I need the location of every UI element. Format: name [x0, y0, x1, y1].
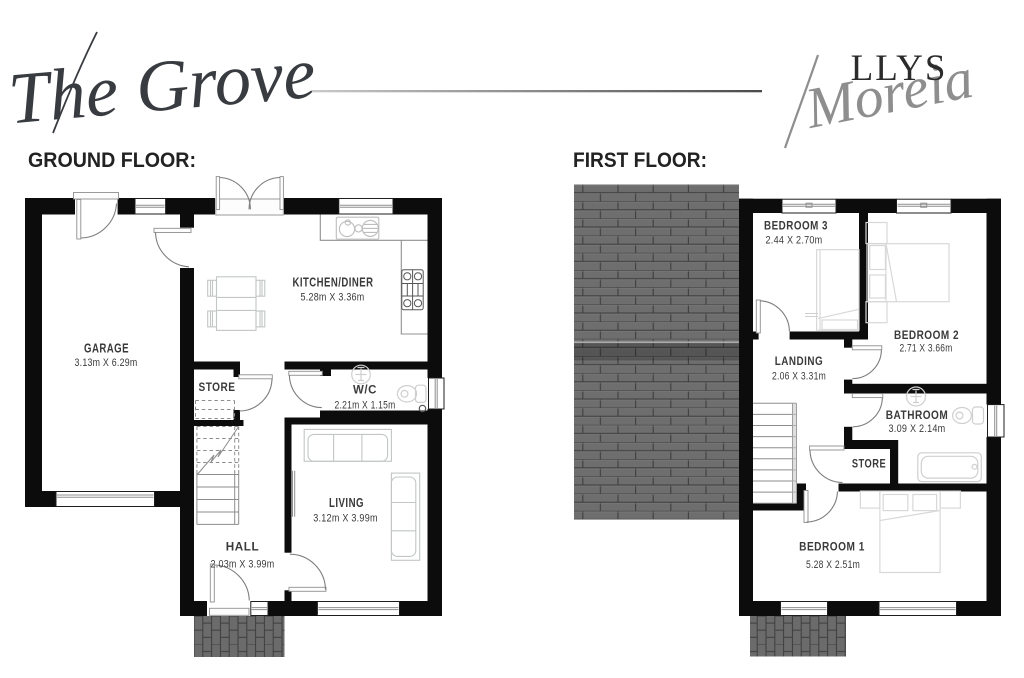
svg-text:KITCHEN/DINER: KITCHEN/DINER — [293, 276, 374, 290]
svg-text:STORE: STORE — [199, 380, 236, 394]
svg-text:2.21m X 1.15m: 2.21m X 1.15m — [335, 400, 396, 412]
svg-text:3.12m X 3.99m: 3.12m X 3.99m — [313, 513, 378, 525]
svg-text:GROUND FLOOR:: GROUND FLOOR: — [28, 149, 196, 172]
svg-text:BATHROOM: BATHROOM — [886, 408, 948, 422]
svg-text:5.28m X 3.36m: 5.28m X 3.36m — [301, 292, 365, 304]
svg-text:LIVING: LIVING — [329, 496, 364, 510]
svg-text:GARAGE: GARAGE — [84, 341, 129, 356]
svg-text:3.09 X 2.14m: 3.09 X 2.14m — [889, 423, 946, 435]
svg-text:The Grove: The Grove — [5, 32, 318, 139]
svg-text:3.13m X 6.29m: 3.13m X 6.29m — [75, 357, 138, 369]
svg-text:BEDROOM 3: BEDROOM 3 — [764, 221, 828, 233]
svg-text:2.03m X 3.99m: 2.03m X 3.99m — [211, 559, 275, 571]
svg-text:W/C: W/C — [353, 383, 377, 397]
svg-text:BEDROOM 1: BEDROOM 1 — [799, 540, 865, 554]
svg-text:5.28 X 2.51m: 5.28 X 2.51m — [806, 559, 860, 571]
svg-text:2.71 X 3.66m: 2.71 X 3.66m — [900, 343, 953, 355]
svg-text:STORE: STORE — [852, 459, 886, 471]
svg-text:LANDING: LANDING — [775, 354, 824, 368]
svg-text:BEDROOM 2: BEDROOM 2 — [894, 328, 959, 342]
svg-text:2.06 X 3.31m: 2.06 X 3.31m — [772, 371, 826, 383]
svg-text:LLYS: LLYS — [851, 48, 948, 89]
svg-text:HALL: HALL — [226, 540, 260, 554]
svg-text:2.44 X 2.70m: 2.44 X 2.70m — [766, 235, 823, 247]
svg-text:FIRST FLOOR:: FIRST FLOOR: — [573, 149, 707, 172]
